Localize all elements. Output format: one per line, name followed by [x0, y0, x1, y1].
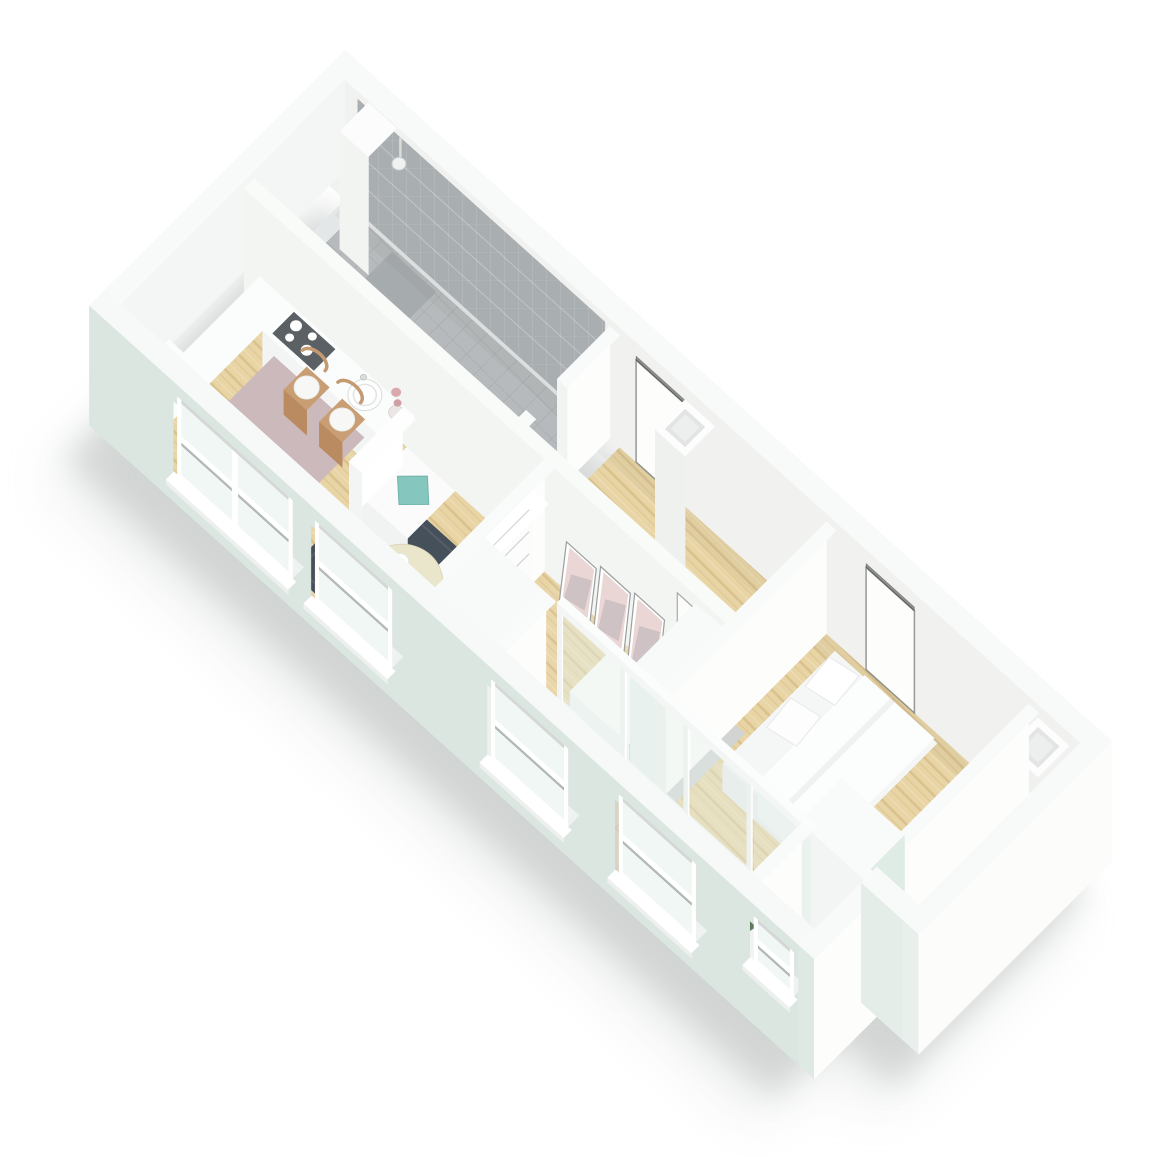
shower-head	[392, 157, 406, 170]
flowers-pink-2	[394, 399, 402, 406]
floorplan-canvas	[0, 0, 1170, 1157]
burner-2	[308, 332, 317, 340]
teal-cushion	[398, 476, 429, 504]
kitchen-faucet	[360, 374, 366, 380]
chair-1-cushion	[294, 376, 319, 399]
burner-1	[290, 320, 302, 331]
chair-2-cushion	[330, 408, 355, 431]
flowers-pink-1	[391, 388, 401, 397]
burner-3	[285, 333, 294, 341]
isometric-floorplan-render	[0, 0, 1170, 1157]
